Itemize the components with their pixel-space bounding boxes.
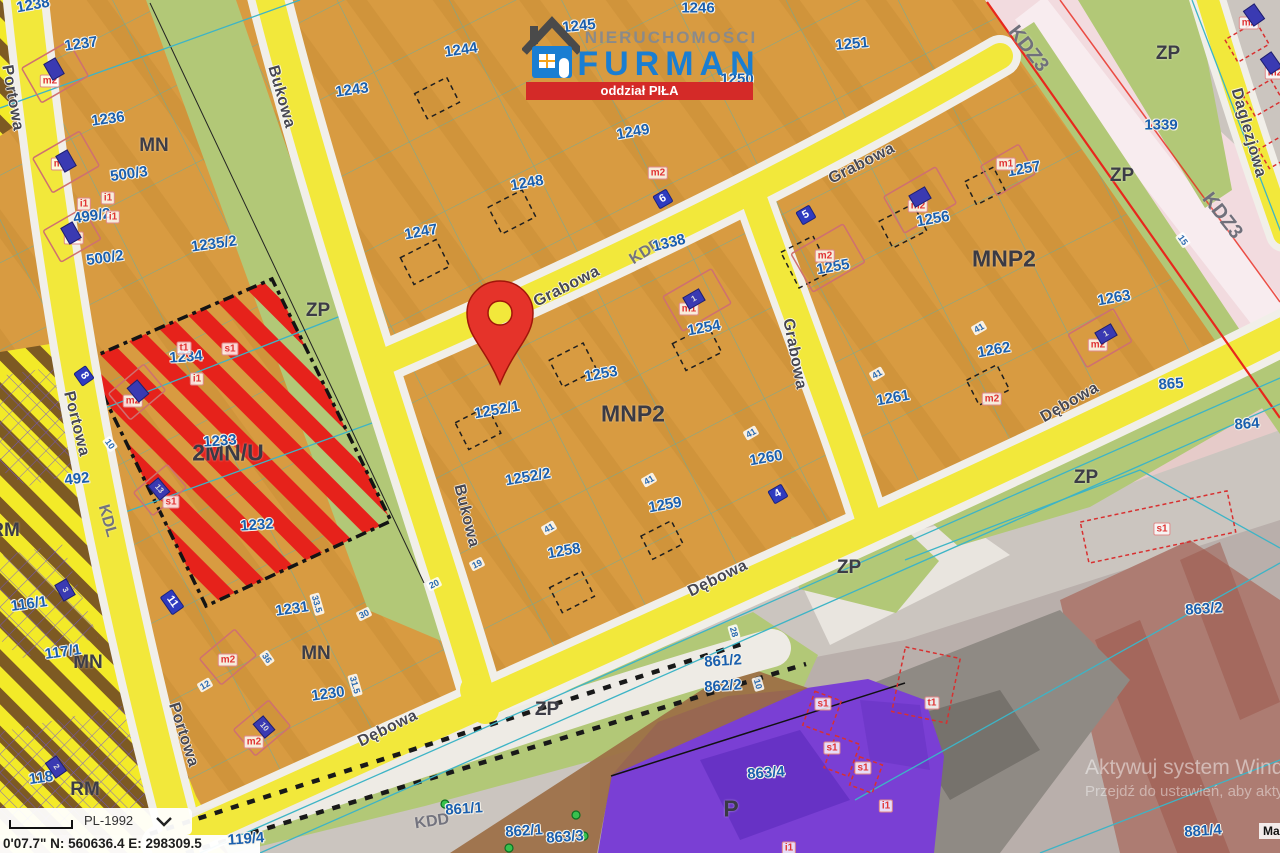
crs-label: PL-1992: [84, 813, 133, 828]
logo-branch-banner: oddział PIŁA: [526, 82, 753, 100]
coordinate-panel: 0'07.7" N: 560636.4 E: 298309.5: [0, 835, 260, 853]
logo-line2: FURMAN: [576, 45, 762, 84]
scale-bar: [0, 808, 80, 835]
agency-logo: NIERUCHOMOŚCI FURMAN oddział PIŁA: [518, 14, 768, 106]
location-pin-icon[interactable]: [454, 274, 546, 386]
windows-activation-watermark: Aktywuj system Wind Przejdź do ustawień,…: [1085, 756, 1280, 800]
crs-panel: PL-1992: [0, 808, 192, 835]
cursor-coordinates: 0'07.7" N: 560636.4 E: 298309.5: [3, 836, 202, 851]
watermark-line1: Aktywuj system Wind: [1085, 756, 1280, 780]
zoning-map-graphics: [0, 0, 1280, 853]
house-logo-icon: [522, 16, 580, 80]
chevron-down-icon[interactable]: [156, 817, 172, 827]
map-attribution: Ma: [1259, 823, 1280, 839]
watermark-line2: Przejdź do ustawień, aby akty: [1085, 783, 1280, 800]
map-canvas[interactable]: PL-1992 0'07.7" N: 560636.4 E: 298309.5 …: [0, 0, 1280, 853]
